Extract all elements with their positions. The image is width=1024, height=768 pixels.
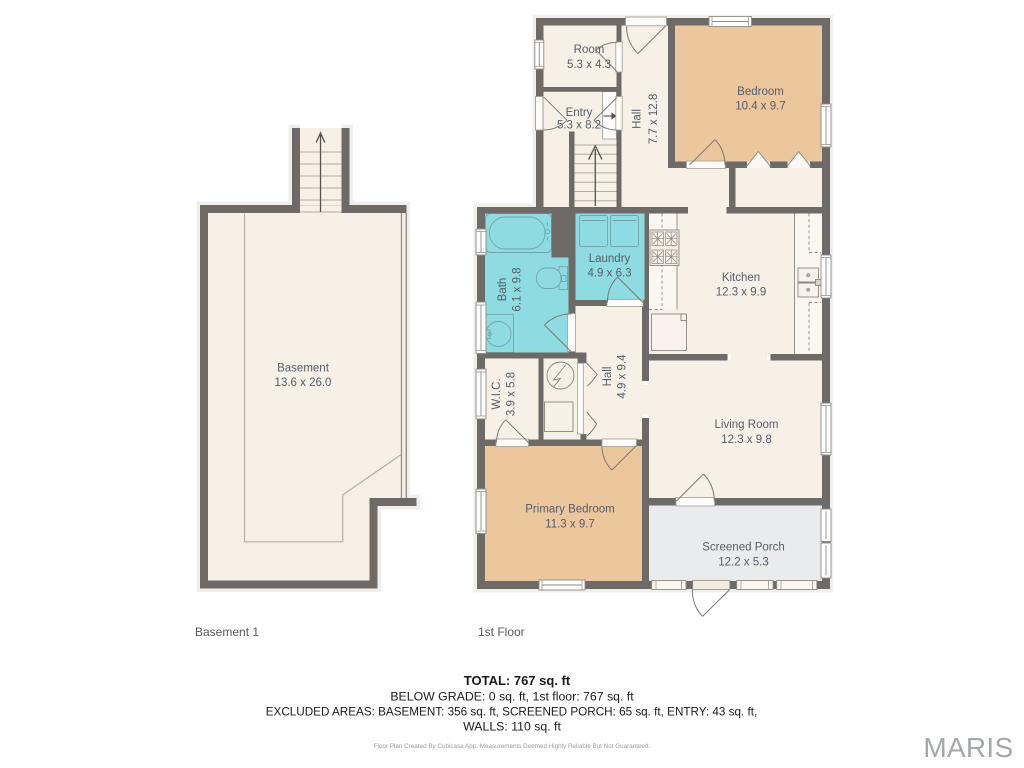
svg-text:11.3 x 9.7: 11.3 x 9.7 (545, 519, 595, 531)
svg-text:1st Floor: 1st Floor (478, 625, 525, 639)
svg-text:Living Room: Living Room (715, 419, 779, 431)
svg-text:BELOW GRADE: 0 sq. ft, 1st flo: BELOW GRADE: 0 sq. ft, 1st floor: 767 sq… (390, 690, 634, 704)
svg-text:Entry: Entry (566, 107, 593, 119)
svg-text:7.7 x 12.8: 7.7 x 12.8 (648, 94, 660, 145)
svg-text:12.2 x 5.3: 12.2 x 5.3 (718, 557, 769, 569)
svg-text:Laundry: Laundry (589, 253, 631, 265)
svg-text:10.4 x 9.7: 10.4 x 9.7 (735, 101, 786, 113)
svg-text:EXCLUDED AREAS: BASEMENT: 356: EXCLUDED AREAS: BASEMENT: 356 sq. ft, SC… (266, 706, 757, 719)
svg-text:4.9 x 9.4: 4.9 x 9.4 (617, 354, 629, 399)
svg-text:13.6 x 26.0: 13.6 x 26.0 (275, 377, 332, 389)
svg-text:5.3 x 4.3: 5.3 x 4.3 (567, 59, 611, 71)
svg-text:MARIS: MARIS (923, 732, 1013, 763)
svg-text:Hall: Hall (602, 367, 614, 387)
svg-text:Basement: Basement (277, 363, 330, 375)
svg-text:Kitchen: Kitchen (722, 272, 760, 284)
svg-text:Basement 1: Basement 1 (195, 625, 259, 639)
svg-text:TOTAL: 767 sq. ft: TOTAL: 767 sq. ft (464, 673, 571, 688)
svg-text:12.3 x 9.8: 12.3 x 9.8 (721, 434, 772, 446)
svg-text:Primary Bedroom: Primary Bedroom (525, 504, 614, 516)
svg-text:4.9 x 6.3: 4.9 x 6.3 (587, 268, 631, 280)
svg-text:Room: Room (574, 44, 605, 56)
svg-text:Screened Porch: Screened Porch (702, 542, 784, 554)
svg-text:WALLS: 110 sq. ft: WALLS: 110 sq. ft (463, 720, 561, 734)
svg-text:12.3 x 9.9: 12.3 x 9.9 (716, 287, 767, 299)
svg-text:Bath: Bath (497, 278, 509, 302)
svg-text:Floor Plan Created By Cubicasa: Floor Plan Created By Cubicasa App. Meas… (374, 743, 651, 750)
svg-text:5.3 x 8.2: 5.3 x 8.2 (557, 120, 601, 132)
svg-text:6.1 x 9.8: 6.1 x 9.8 (512, 267, 524, 311)
svg-text:Bedroom: Bedroom (737, 86, 784, 98)
svg-text:Hall: Hall (632, 109, 644, 129)
svg-text:3.9 x 5.8: 3.9 x 5.8 (506, 372, 518, 416)
svg-text:W.I.C.: W.I.C. (491, 378, 503, 409)
